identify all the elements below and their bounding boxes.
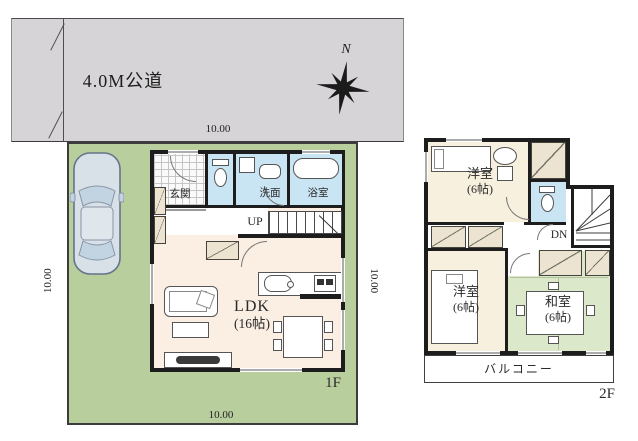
wall (571, 245, 613, 248)
bathroom-label: 浴室 (301, 188, 335, 199)
washroom-label: 洗面 (253, 188, 287, 199)
floorplan-canvas: 4.0M公道 10.00 N 10.00 10.00 10.00 (0, 0, 638, 441)
wall (238, 234, 342, 238)
bedroom-top-label: 洋室 (452, 167, 508, 181)
bedroom-left-size: (6帖) (438, 301, 494, 314)
ldk-label: LDK (224, 299, 280, 316)
closet-2f (468, 226, 503, 248)
washbasin-icon (259, 164, 281, 179)
pillow-icon (434, 149, 444, 169)
cushion-icon (548, 282, 559, 290)
stairs-up-label: UP (243, 215, 267, 228)
chair-icon (324, 321, 333, 333)
boundary-line (63, 18, 64, 142)
wall (428, 248, 508, 251)
wall (205, 154, 208, 205)
wall (287, 154, 290, 205)
toilet-icon (541, 194, 554, 212)
closet-2f (585, 250, 610, 276)
cushion-icon (548, 336, 559, 344)
tv-icon (176, 356, 220, 364)
window (168, 150, 198, 154)
car-icon (70, 151, 124, 277)
chair-icon (493, 147, 517, 165)
bedroom-left-label: 洋室 (438, 285, 494, 299)
chair-icon (273, 339, 282, 351)
entrance-label: 玄関 (158, 189, 202, 200)
burner-icon (326, 279, 333, 285)
road-label: 4.0M公道 (68, 72, 178, 91)
floor2-label: 2F (592, 387, 622, 403)
window (341, 258, 345, 302)
wall (566, 138, 570, 189)
cushion-icon (516, 305, 525, 316)
shoe-closet (154, 216, 166, 244)
cushion-icon (586, 305, 595, 316)
ldk-size-label: (16帖) (215, 317, 289, 331)
bathtub-icon (293, 158, 339, 179)
counter-edge (300, 294, 342, 299)
window (150, 264, 154, 304)
bedroom-top-size: (6帖) (452, 183, 508, 196)
window (341, 310, 345, 350)
window (302, 150, 330, 154)
compass-icon (307, 52, 379, 124)
toilet-icon (539, 186, 555, 193)
balcony-label: バルコニー (424, 363, 614, 376)
burner-icon (317, 279, 324, 285)
dimension-left: 10.00 (43, 260, 55, 302)
faucet-icon (287, 281, 294, 288)
dimension-bottom: 10.00 (195, 410, 247, 422)
closet-1f (206, 241, 239, 260)
stairs-2f (574, 189, 610, 245)
tatami-size: (6帖) (530, 311, 586, 324)
coffee-table-icon (172, 322, 209, 338)
stairs-1f (268, 211, 342, 234)
wall (610, 185, 614, 355)
window (446, 138, 482, 142)
floor1-label: 1F (318, 376, 348, 392)
closet-2f (531, 142, 566, 179)
toilet-icon (212, 159, 229, 166)
dining-table-icon (283, 316, 323, 358)
wall (505, 248, 508, 351)
dimension-right: 10.00 (367, 260, 379, 302)
wall (233, 154, 236, 205)
chair-icon (324, 339, 333, 351)
washing-machine-icon (239, 157, 255, 173)
dimension-top: 10.00 (192, 124, 244, 136)
pillow-icon (446, 274, 463, 284)
toilet-icon (214, 168, 227, 187)
closet-2f (539, 250, 582, 276)
tatami-label: 和室 (530, 295, 586, 309)
stairs-down-label: DN (546, 229, 572, 241)
door-gap (504, 222, 524, 225)
tatami-seam (510, 277, 608, 278)
window (240, 368, 302, 372)
closet-2f (431, 226, 466, 248)
window (424, 152, 428, 182)
